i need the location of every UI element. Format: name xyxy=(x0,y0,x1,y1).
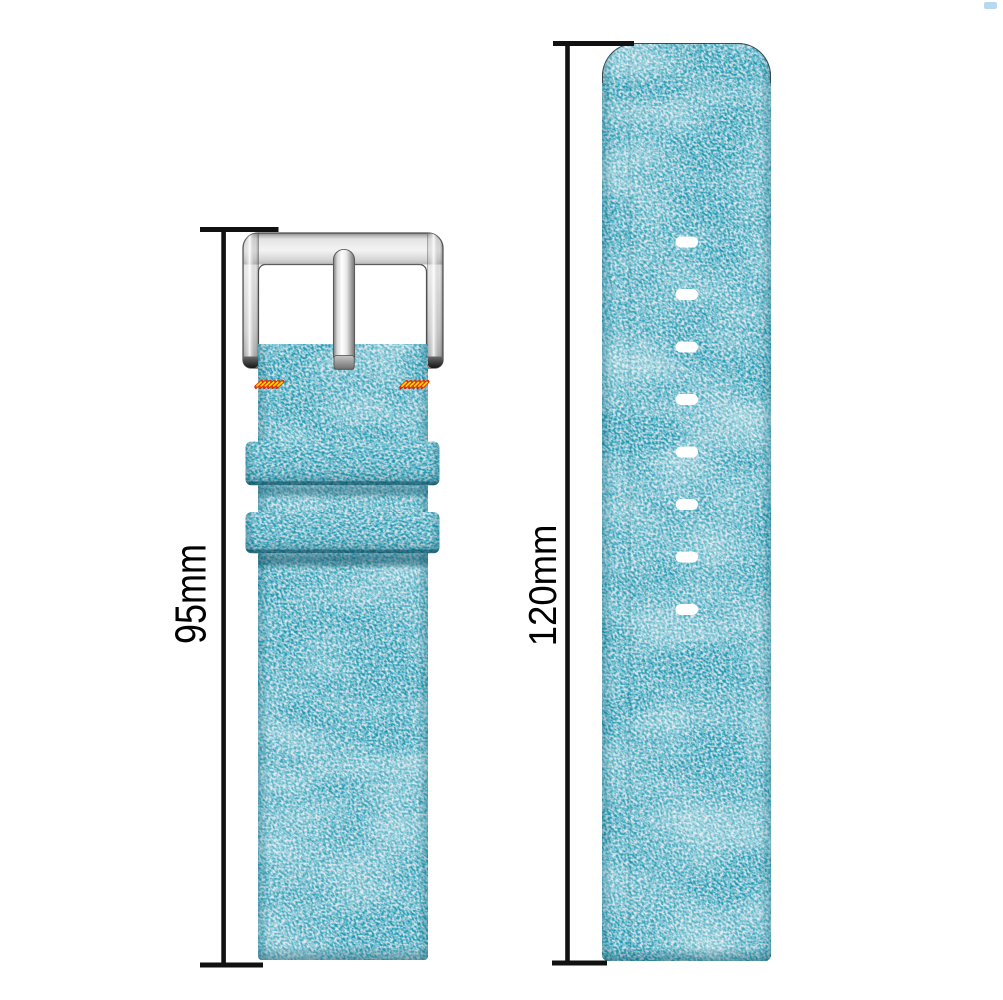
svg-text:95mm: 95mm xyxy=(167,544,215,644)
svg-text:120mm: 120mm xyxy=(521,525,564,647)
